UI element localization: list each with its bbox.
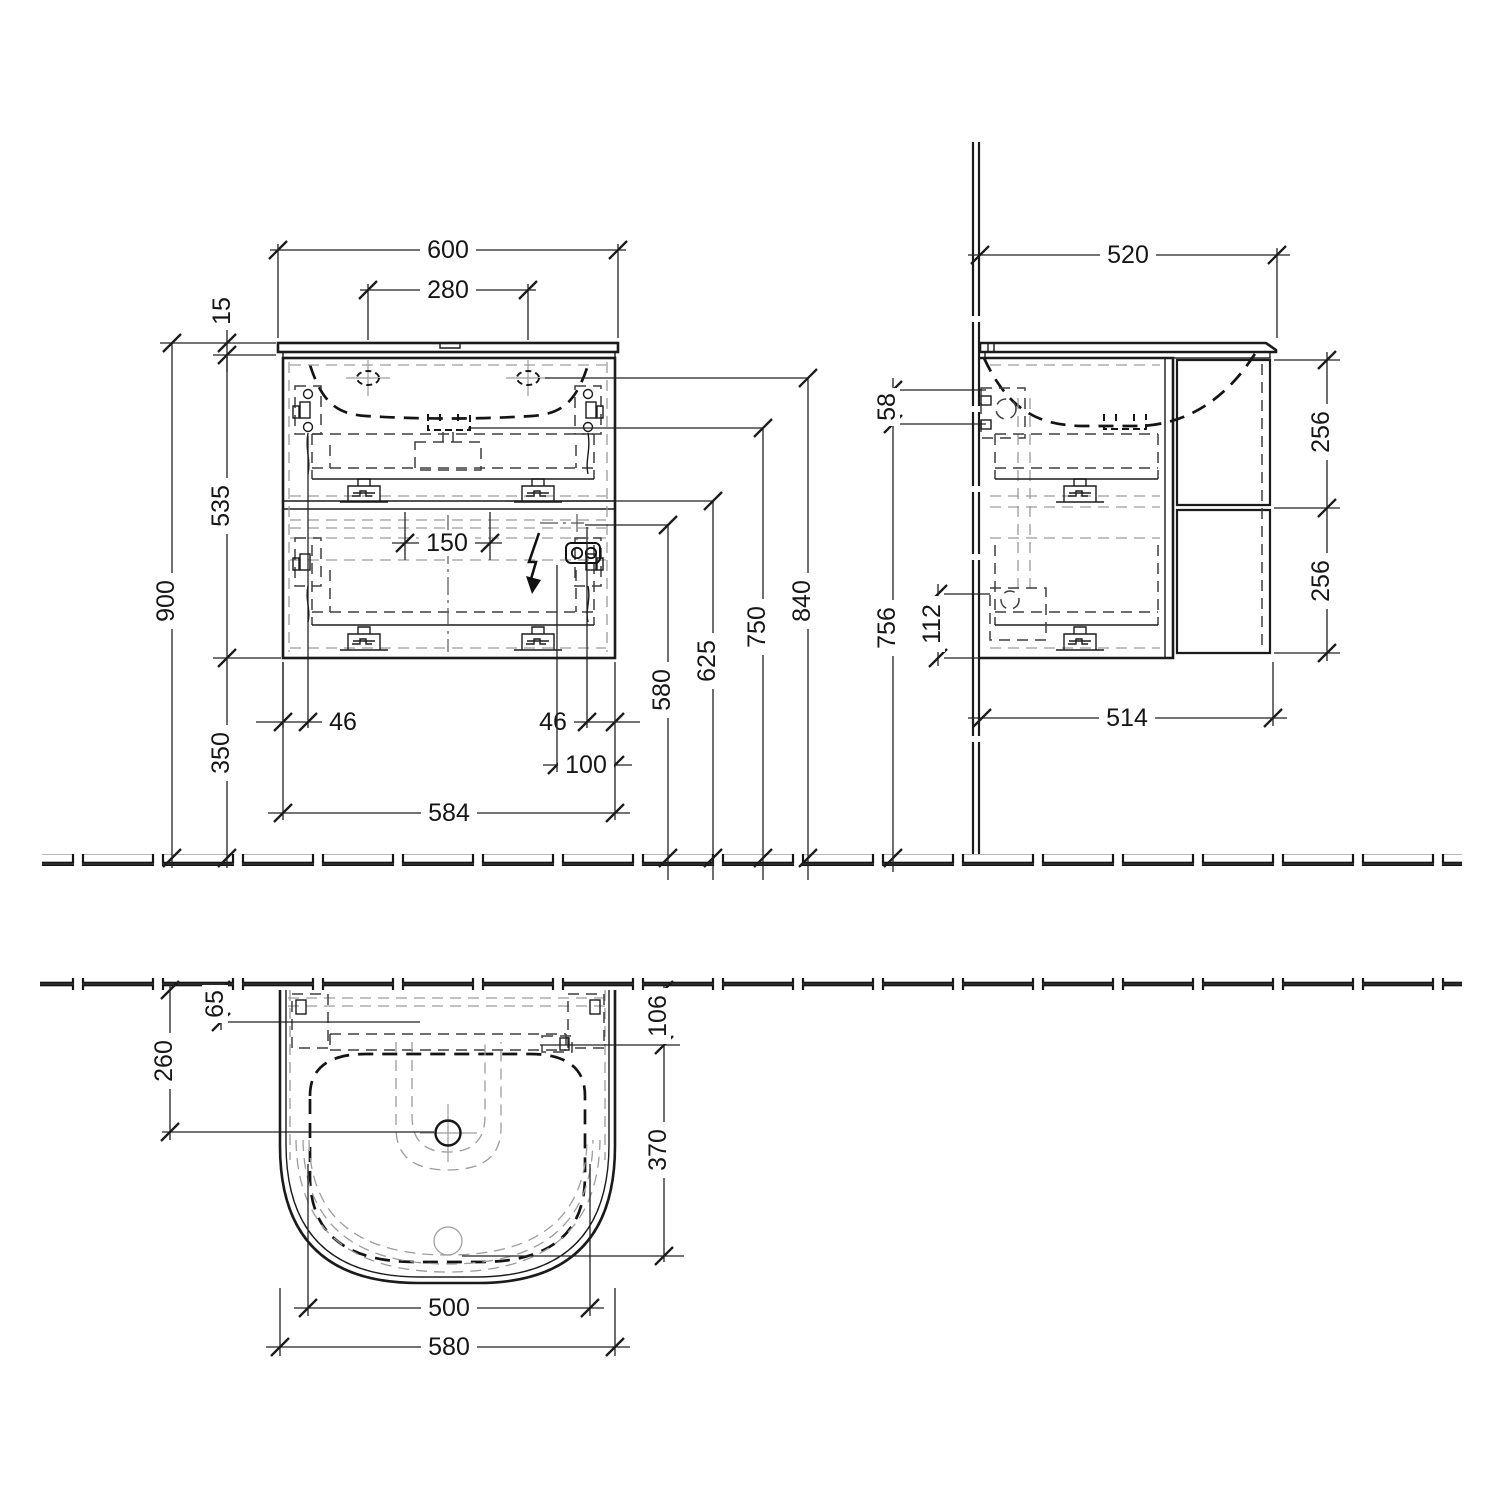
svg-text:350: 350 bbox=[207, 732, 235, 774]
dim-front-floor-clearance: 350 bbox=[207, 658, 236, 868]
dim-side-overall-depth: 520 bbox=[968, 241, 1290, 338]
dim-bowl-depth: 370 bbox=[644, 1129, 672, 1171]
svg-text:46: 46 bbox=[329, 708, 357, 736]
svg-text:46: 46 bbox=[539, 708, 567, 736]
dim-outlet-height: 580 bbox=[648, 669, 676, 711]
svg-text:100: 100 bbox=[565, 751, 607, 779]
svg-text:280: 280 bbox=[427, 276, 469, 304]
svg-text:150: 150 bbox=[426, 529, 468, 557]
washbasin-top-front bbox=[278, 343, 618, 358]
dim-lower-drawer-front: 256 bbox=[1307, 560, 1335, 602]
dim-front-tap-spacing: 280 bbox=[359, 276, 537, 340]
technical-drawing-page: 600 280 15 535 350 900 bbox=[0, 0, 1500, 1500]
dim-trap-height: 756 bbox=[873, 607, 901, 649]
dim-drain-height: 750 bbox=[743, 606, 771, 648]
svg-text:580: 580 bbox=[428, 1333, 470, 1361]
plan-view: 65 260 106 370 500 580 bbox=[40, 978, 1462, 1361]
vanity-dimension-drawing: 600 280 15 535 350 900 bbox=[0, 0, 1500, 1500]
svg-text:600: 600 bbox=[427, 236, 469, 264]
dim-drawer-split-height: 625 bbox=[693, 640, 721, 682]
dim-fixing-bracket-height: 58 bbox=[873, 393, 901, 421]
lightning-bolt-icon bbox=[526, 533, 541, 594]
dim-plan-rear-clearance-and-bowl-depth: 106 370 bbox=[462, 981, 684, 1265]
basin-bowl-hidden-edge bbox=[310, 365, 588, 419]
svg-text:535: 535 bbox=[207, 485, 235, 527]
dim-front-fixing-offset-right: 46 bbox=[534, 527, 640, 736]
dim-front-cabinet-width: 584 bbox=[268, 662, 630, 827]
svg-text:584: 584 bbox=[428, 799, 470, 827]
cabinet-side-outline bbox=[980, 358, 1173, 658]
faucet-hole-icon-plan bbox=[420, 1104, 477, 1162]
svg-text:112: 112 bbox=[918, 604, 946, 644]
drawer-gap-front bbox=[283, 501, 615, 509]
dim-side-drawer-fronts: 256 256 bbox=[1274, 351, 1340, 662]
dim-front-mounting-height: 900 bbox=[152, 334, 181, 868]
svg-text:520: 520 bbox=[1107, 241, 1149, 269]
svg-text:500: 500 bbox=[428, 1294, 470, 1322]
svg-text:65: 65 bbox=[201, 990, 229, 1018]
dim-upper-drawer-front: 256 bbox=[1307, 411, 1335, 453]
washbasin-top-side bbox=[980, 343, 1276, 358]
dim-front-countertop-thickness: 15 bbox=[160, 292, 276, 372]
svg-text:15: 15 bbox=[208, 297, 236, 325]
overflow-hole-icon bbox=[434, 1227, 462, 1255]
dim-rear-clearance: 106 bbox=[644, 995, 672, 1037]
front-view: 600 280 15 535 350 900 bbox=[152, 236, 817, 880]
wall-line bbox=[973, 142, 979, 854]
svg-text:900: 900 bbox=[152, 580, 180, 622]
drawer-fronts-side bbox=[1177, 360, 1270, 653]
side-view: 520 58 756 112 256 256 514 bbox=[873, 142, 1340, 872]
cabinet-front-outline bbox=[283, 358, 615, 658]
svg-text:260: 260 bbox=[150, 1040, 178, 1082]
drain-cutout-icon bbox=[428, 414, 470, 430]
dim-side-body-depth: 514 bbox=[968, 662, 1287, 732]
dim-front-trap-cutout: 150 bbox=[392, 512, 502, 560]
floor-line bbox=[42, 854, 1462, 866]
svg-text:514: 514 bbox=[1106, 704, 1148, 732]
dim-basin-rim-height: 840 bbox=[788, 580, 816, 622]
dim-front-fixing-offset-left: 46 bbox=[256, 436, 362, 736]
wall-line-plan bbox=[40, 978, 1462, 990]
dim-front-cabinet-height: 535 bbox=[207, 355, 281, 667]
fixing-bracket-detail bbox=[981, 388, 1030, 596]
